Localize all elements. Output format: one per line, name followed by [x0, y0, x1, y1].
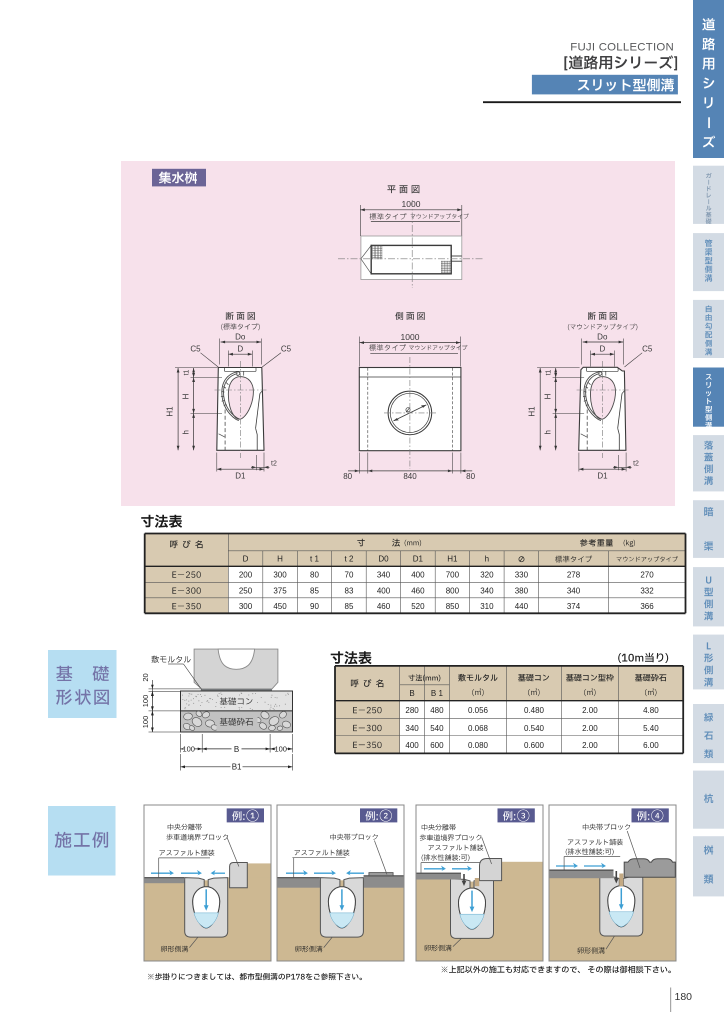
svg-text:85: 85 — [310, 587, 319, 596]
svg-text:1000: 1000 — [401, 332, 420, 342]
svg-text:B1: B1 — [232, 763, 242, 772]
svg-text:300: 300 — [273, 571, 287, 580]
svg-text:83: 83 — [345, 587, 354, 596]
svg-text:375: 375 — [273, 587, 287, 596]
svg-text:t1: t1 — [184, 369, 191, 375]
svg-text:340: 340 — [480, 587, 494, 596]
svg-text:100: 100 — [182, 745, 195, 754]
svg-text:180: 180 — [675, 991, 693, 1003]
svg-text:H: H — [182, 393, 191, 399]
svg-text:400: 400 — [411, 571, 425, 580]
svg-text:D1: D1 — [235, 472, 246, 481]
svg-text:4.80: 4.80 — [643, 706, 659, 715]
svg-text:100: 100 — [141, 716, 150, 729]
svg-text:0.056: 0.056 — [468, 706, 489, 715]
svg-text:340: 340 — [377, 571, 391, 580]
svg-text:2.00: 2.00 — [582, 724, 598, 733]
svg-text:H1: H1 — [527, 406, 536, 417]
svg-text:D: D — [237, 344, 243, 353]
svg-text:B: B — [409, 689, 414, 698]
svg-text:0.540: 0.540 — [524, 724, 545, 733]
svg-text:450: 450 — [273, 602, 287, 611]
svg-text:340: 340 — [567, 587, 581, 596]
svg-text:85: 85 — [345, 602, 354, 611]
svg-text:250: 250 — [239, 587, 253, 596]
svg-text:C5: C5 — [190, 344, 201, 353]
svg-text:H: H — [277, 555, 283, 564]
svg-text:850: 850 — [446, 602, 460, 611]
svg-text:h: h — [182, 430, 191, 434]
svg-text:t1: t1 — [546, 369, 553, 375]
svg-text:H1: H1 — [165, 406, 174, 417]
svg-text:320: 320 — [480, 571, 494, 580]
svg-text:100: 100 — [274, 745, 287, 754]
svg-text:80: 80 — [466, 472, 475, 481]
svg-text:280: 280 — [405, 706, 419, 715]
svg-text:80: 80 — [343, 472, 352, 481]
svg-text:D: D — [600, 344, 606, 353]
svg-text:480: 480 — [430, 706, 444, 715]
svg-text:5.40: 5.40 — [643, 724, 659, 733]
svg-text:t2: t2 — [271, 460, 277, 467]
svg-text:H: H — [544, 393, 553, 399]
svg-text:340: 340 — [405, 724, 419, 733]
svg-text:310: 310 — [480, 602, 494, 611]
svg-text:0.080: 0.080 — [468, 741, 489, 750]
svg-text:100: 100 — [141, 695, 150, 708]
svg-text:90: 90 — [310, 602, 319, 611]
svg-text:6.00: 6.00 — [643, 741, 659, 750]
svg-text:270: 270 — [640, 571, 654, 580]
svg-text:600: 600 — [430, 741, 444, 750]
svg-text:374: 374 — [567, 602, 581, 611]
svg-text:400: 400 — [405, 741, 419, 750]
svg-text:t 1: t 1 — [310, 555, 319, 564]
svg-text:840: 840 — [403, 472, 417, 481]
svg-text:540: 540 — [430, 724, 444, 733]
svg-text:460: 460 — [411, 587, 425, 596]
svg-text:C5: C5 — [281, 344, 292, 353]
svg-text:70: 70 — [345, 571, 354, 580]
svg-text:D: D — [243, 555, 249, 564]
svg-text:200: 200 — [239, 571, 253, 580]
svg-text:0.068: 0.068 — [468, 724, 489, 733]
svg-text:t2: t2 — [633, 460, 639, 467]
svg-text:B 1: B 1 — [431, 689, 444, 698]
svg-text:520: 520 — [411, 602, 425, 611]
svg-text:Do: Do — [235, 333, 246, 342]
svg-text:1000: 1000 — [402, 199, 421, 209]
svg-text:h: h — [544, 430, 553, 434]
svg-text:332: 332 — [640, 587, 654, 596]
svg-text:700: 700 — [446, 571, 460, 580]
svg-text:t 2: t 2 — [345, 555, 354, 564]
svg-text:C5: C5 — [642, 344, 653, 353]
svg-text:20: 20 — [141, 673, 150, 681]
svg-text:380: 380 — [515, 587, 529, 596]
svg-text:800: 800 — [446, 587, 460, 596]
svg-text:D1: D1 — [413, 555, 424, 564]
svg-text:440: 440 — [515, 602, 529, 611]
svg-text:330: 330 — [515, 571, 529, 580]
svg-text:0.600: 0.600 — [524, 741, 545, 750]
svg-text:FUJI COLLECTION: FUJI COLLECTION — [570, 42, 674, 54]
svg-text:460: 460 — [377, 602, 391, 611]
svg-text:2.00: 2.00 — [582, 706, 598, 715]
svg-text:300: 300 — [239, 602, 253, 611]
svg-text:80: 80 — [310, 571, 319, 580]
svg-text:h: h — [485, 555, 489, 564]
svg-text:D0: D0 — [378, 555, 389, 564]
svg-text:278: 278 — [567, 571, 581, 580]
svg-text:Do: Do — [597, 333, 608, 342]
svg-text:400: 400 — [377, 587, 391, 596]
svg-text:H1: H1 — [447, 555, 458, 564]
svg-text:B: B — [234, 745, 239, 754]
svg-text:366: 366 — [640, 602, 654, 611]
svg-text:0.480: 0.480 — [524, 706, 545, 715]
svg-text:D1: D1 — [597, 472, 608, 481]
svg-text:2.00: 2.00 — [582, 741, 598, 750]
